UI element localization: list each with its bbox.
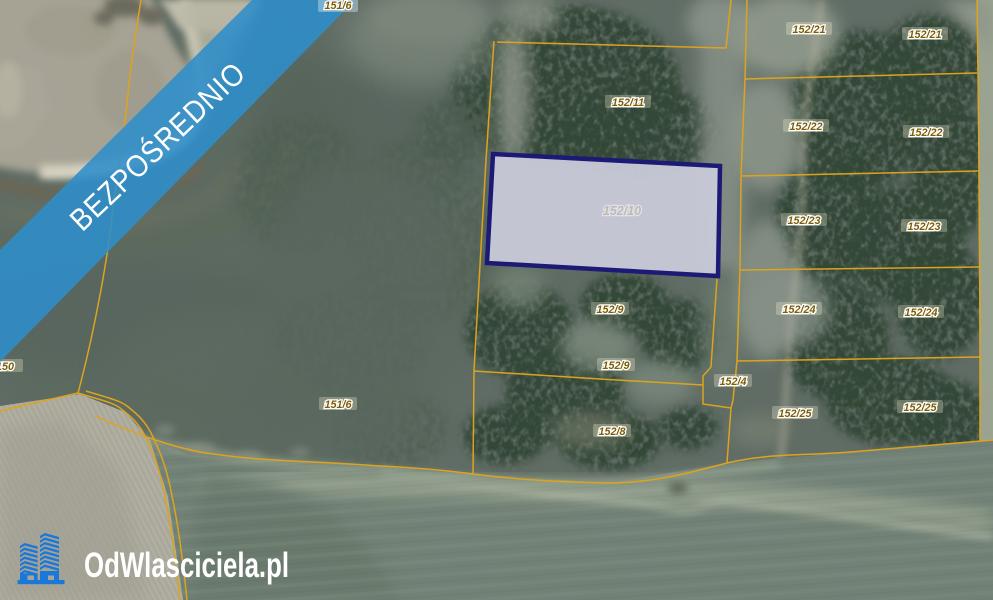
svg-text:152/22: 152/22	[789, 121, 822, 133]
svg-text:152/25: 152/25	[778, 408, 812, 420]
svg-text:152/23: 152/23	[907, 221, 940, 233]
svg-text:OdWlasciciela.pl: OdWlasciciela.pl	[84, 546, 289, 585]
svg-text:152/24: 152/24	[904, 307, 937, 319]
svg-text:152/10: 152/10	[603, 204, 641, 218]
svg-text:BEZPOŚREDNIO: BEZPOŚREDNIO	[62, 54, 252, 237]
svg-text:150: 150	[0, 361, 14, 373]
svg-text:152/21: 152/21	[792, 24, 825, 36]
svg-text:152/9: 152/9	[596, 304, 623, 316]
svg-text:152/21: 152/21	[908, 29, 941, 41]
svg-text:151/6: 151/6	[324, 0, 352, 12]
svg-text:152/22: 152/22	[909, 127, 942, 139]
svg-text:152/25: 152/25	[903, 402, 937, 414]
svg-text:152/4: 152/4	[719, 376, 746, 388]
svg-text:151/6: 151/6	[324, 399, 352, 411]
svg-text:152/8: 152/8	[598, 426, 625, 438]
svg-text:152/11: 152/11	[612, 97, 644, 109]
svg-text:152/9: 152/9	[602, 360, 629, 372]
svg-text:152/23: 152/23	[787, 215, 820, 227]
svg-text:152/24: 152/24	[782, 304, 815, 316]
